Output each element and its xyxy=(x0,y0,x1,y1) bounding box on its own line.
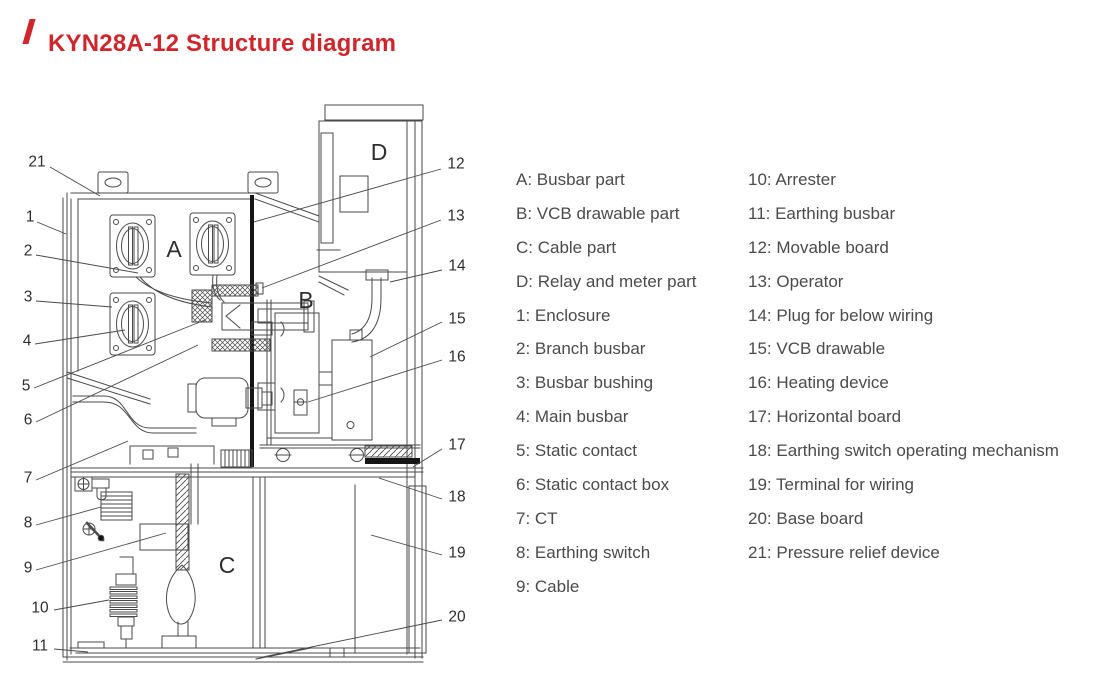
callout-14: 14 xyxy=(448,258,466,275)
callout-20: 20 xyxy=(448,609,466,626)
leader-line-12 xyxy=(254,169,441,222)
vcb-drawable-part xyxy=(260,270,420,462)
cabinet-enclosure-lines xyxy=(63,120,423,662)
legend-column-left: A: Busbar partB: VCB drawable partC: Cab… xyxy=(516,163,748,604)
cable-part xyxy=(75,474,426,653)
callout-16: 16 xyxy=(448,349,465,366)
horizontal-board-lines xyxy=(71,468,423,477)
legend-item: 8: Earthing switch xyxy=(516,536,748,570)
leader-line-7 xyxy=(36,441,128,480)
current-transformer xyxy=(73,378,272,550)
callout-10: 10 xyxy=(31,600,49,617)
legend-item: 5: Static contact xyxy=(516,434,748,468)
legend-item: B: VCB drawable part xyxy=(516,197,748,231)
busbar-bushing-plates xyxy=(110,213,235,355)
legend-item: 6: Static contact box xyxy=(516,468,748,502)
legend-item: 17: Horizontal board xyxy=(748,400,1059,434)
leader-line-1 xyxy=(37,222,66,234)
leader-line-21 xyxy=(50,167,100,196)
legend-item: 18: Earthing switch operating mechanism xyxy=(748,434,1059,468)
movable-board-bar xyxy=(252,195,420,467)
callout-5: 5 xyxy=(22,378,31,395)
callout-3: 3 xyxy=(24,289,33,306)
callout-12: 12 xyxy=(447,156,464,173)
legend-item: 13: Operator xyxy=(748,265,1059,299)
leader-line-8 xyxy=(36,507,101,525)
callout-7: 7 xyxy=(24,470,33,487)
callout-18: 18 xyxy=(448,489,465,506)
legend-item: 14: Plug for below wiring xyxy=(748,299,1059,333)
legend-item: 11: Earthing busbar xyxy=(748,197,1059,231)
callout-layer: 211234567891011121314151617181920ABCD xyxy=(22,139,466,657)
legend-item: A: Busbar part xyxy=(516,163,748,197)
parts-legend: A: Busbar partB: VCB drawable partC: Cab… xyxy=(516,163,1059,604)
callout-9: 9 xyxy=(24,560,33,577)
structure-diagram-figure: 211234567891011121314151617181920ABCD xyxy=(0,0,500,674)
callout-6: 6 xyxy=(24,412,33,429)
callout-19: 19 xyxy=(448,545,465,562)
page: KYN28A-12 Structure diagram xyxy=(0,0,1120,674)
section-label-D: D xyxy=(371,139,388,165)
callout-21: 21 xyxy=(28,154,45,171)
legend-item: 21: Pressure relief device xyxy=(748,536,1059,570)
legend-item: D: Relay and meter part xyxy=(516,265,748,299)
callout-2: 2 xyxy=(24,243,33,260)
leader-line-3 xyxy=(36,301,112,307)
legend-item: 12: Movable board xyxy=(748,231,1059,265)
legend-item: 2: Branch busbar xyxy=(516,332,748,366)
lifting-lugs xyxy=(98,172,278,193)
legend-item: 20: Base board xyxy=(748,502,1059,536)
legend-item: 1: Enclosure xyxy=(516,299,748,333)
leader-line-10 xyxy=(54,600,109,610)
leader-line-13 xyxy=(262,220,441,288)
legend-item: 9: Cable xyxy=(516,570,748,604)
legend-item: 15: VCB drawable xyxy=(748,332,1059,366)
section-label-C: C xyxy=(219,552,236,578)
diagram-canvas: 211234567891011121314151617181920ABCD xyxy=(0,0,500,674)
callout-13: 13 xyxy=(447,208,464,225)
callout-4: 4 xyxy=(23,333,32,350)
callout-11: 11 xyxy=(32,638,48,655)
legend-column-right: 10: Arrester11: Earthing busbar12: Movab… xyxy=(748,163,1059,604)
leader-line-15 xyxy=(370,322,442,357)
legend-item: 19: Terminal for wiring xyxy=(748,468,1059,502)
callout-15: 15 xyxy=(448,311,465,328)
section-label-B: B xyxy=(298,287,313,313)
legend-item: 3: Busbar bushing xyxy=(516,366,748,400)
legend-item: 16: Heating device xyxy=(748,366,1059,400)
leader-line-4 xyxy=(35,330,125,344)
section-label-A: A xyxy=(166,236,182,262)
callout-1: 1 xyxy=(26,209,35,226)
callout-8: 8 xyxy=(24,515,33,532)
callout-17: 17 xyxy=(448,437,465,454)
legend-item: 4: Main busbar xyxy=(516,400,748,434)
relay-meter-box xyxy=(256,105,423,294)
legend-item: C: Cable part xyxy=(516,231,748,265)
leader-line-6 xyxy=(36,345,198,422)
legend-item: 10: Arrester xyxy=(748,163,1059,197)
legend-item: 7: CT xyxy=(516,502,748,536)
leader-line-18 xyxy=(379,478,442,499)
